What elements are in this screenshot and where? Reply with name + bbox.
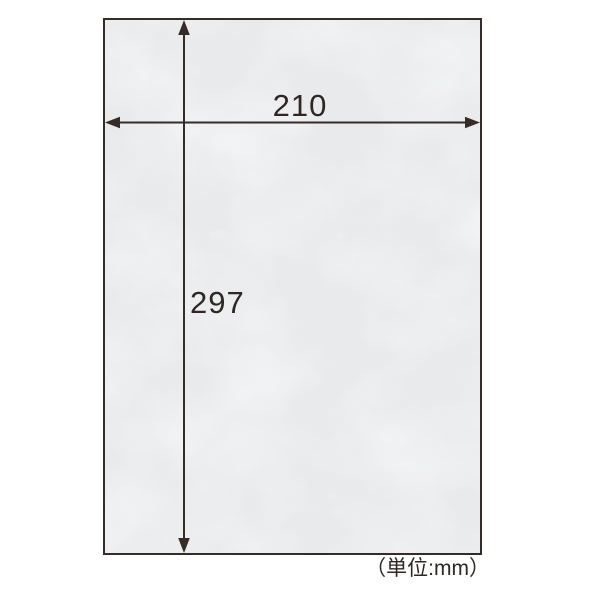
width-dimension-label: 210 bbox=[258, 90, 342, 121]
height-dimension-label: 297 bbox=[190, 287, 245, 318]
unit-note: （単位:mm） bbox=[365, 556, 490, 582]
product-dimension-diagram: 210 297 （単位:mm） bbox=[0, 0, 600, 600]
